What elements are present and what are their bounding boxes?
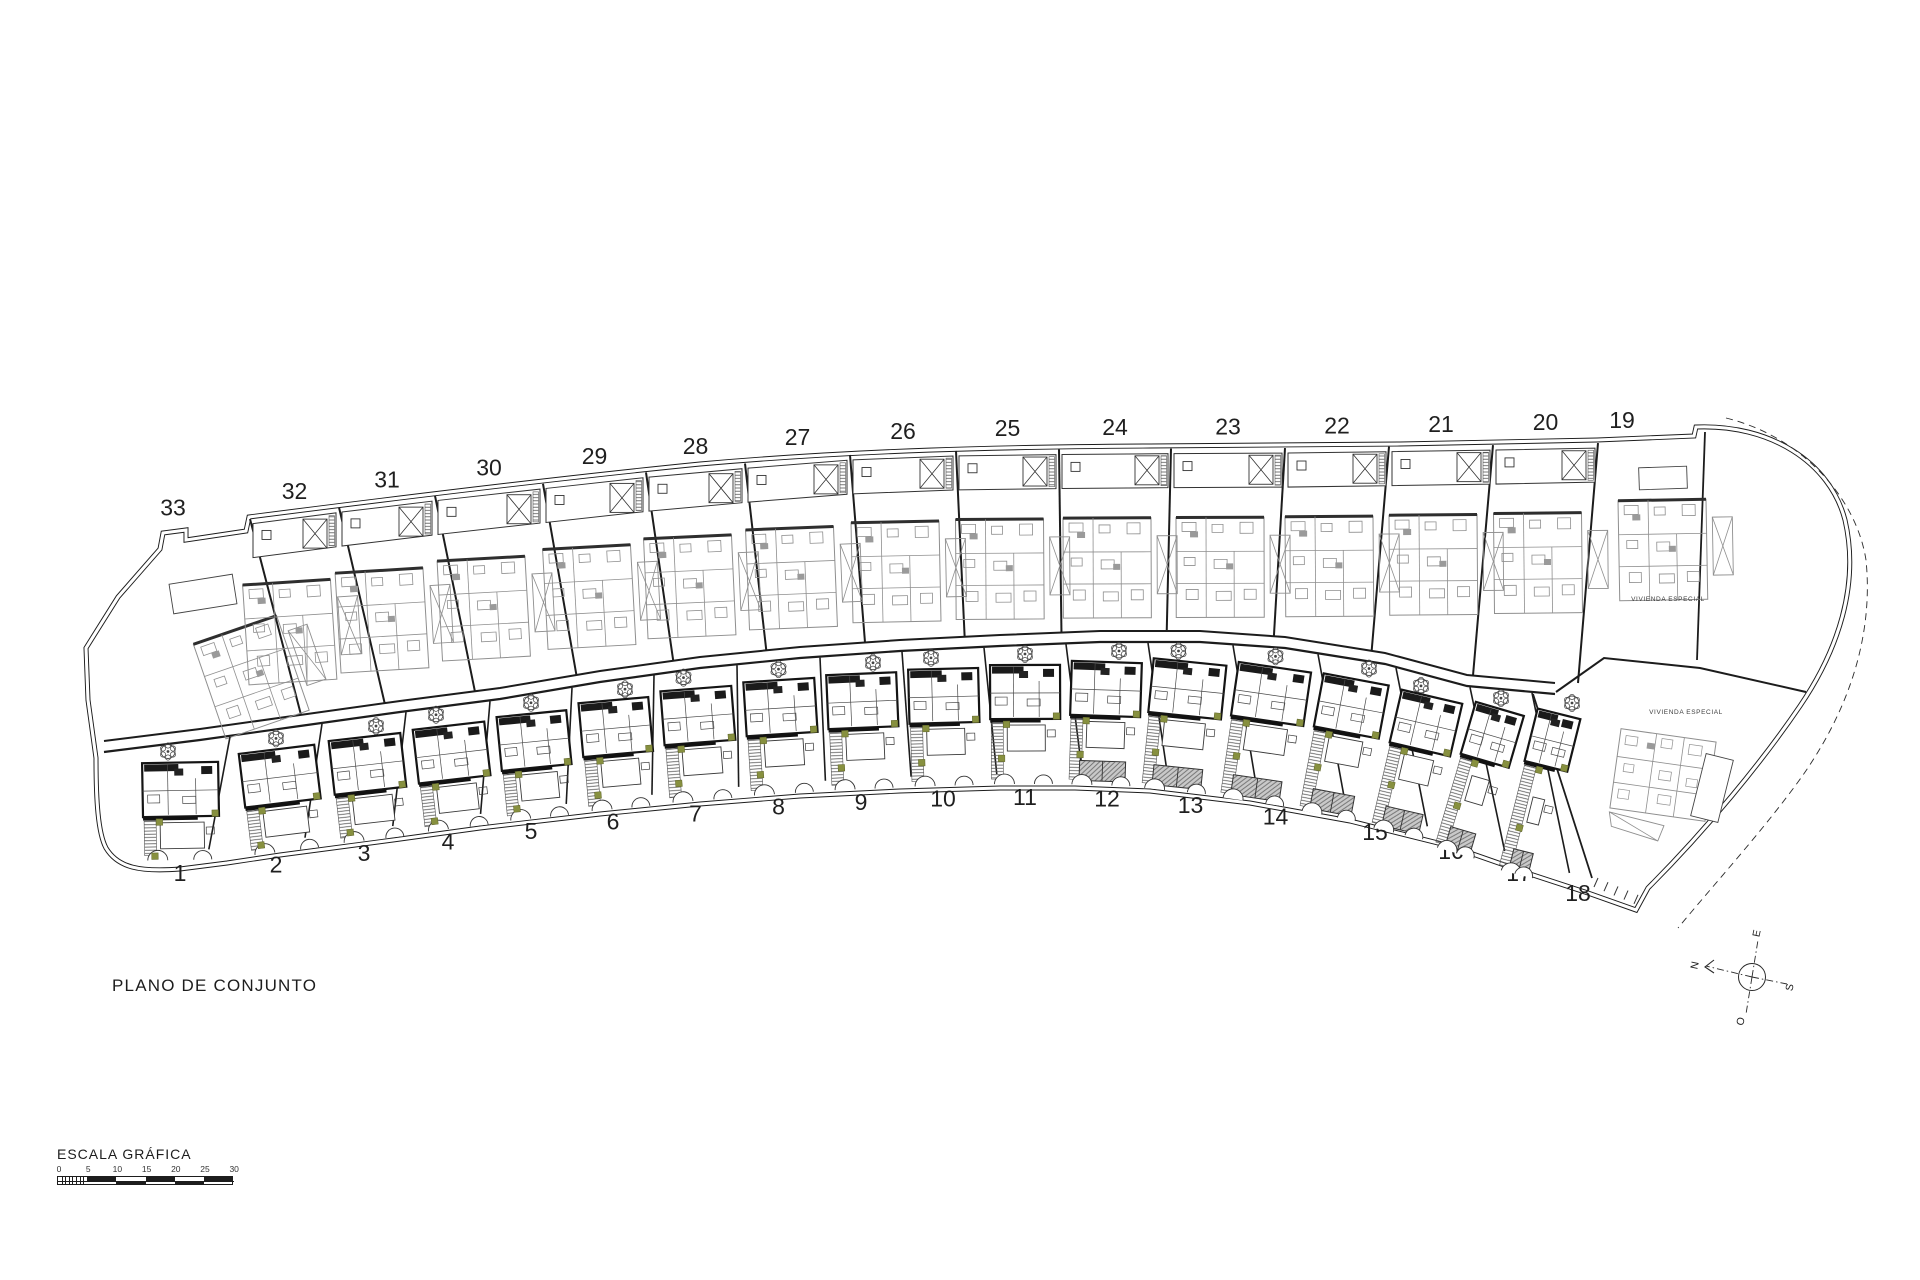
pool: [519, 771, 559, 801]
pool: [764, 739, 805, 767]
graphic-scale: ESCALA GRÁFICA 051015202530: [57, 1146, 242, 1185]
special-plot-label: VIVIENDA ESPECIAL: [1631, 596, 1705, 603]
gate-marker: [596, 757, 603, 764]
plot-number-label: 11: [1013, 784, 1037, 810]
plot-number-label: 13: [1178, 792, 1204, 818]
plot-number-label: 4: [442, 828, 455, 854]
gate-marker: [1003, 721, 1010, 728]
gate-marker: [838, 765, 845, 772]
gate-marker: [1243, 719, 1250, 726]
gate-marker: [431, 818, 438, 825]
plot-number-label: 22: [1324, 412, 1350, 438]
pool: [1086, 721, 1125, 748]
gate-marker: [1314, 764, 1322, 772]
gate-marker: [1515, 824, 1523, 832]
plot-number-label: 3: [358, 840, 371, 866]
plot-number-label: 14: [1263, 804, 1289, 830]
gate-marker: [156, 819, 163, 826]
pool: [1639, 466, 1688, 490]
gate-marker: [1296, 719, 1303, 726]
pool: [437, 783, 480, 813]
drive-strip: [830, 733, 844, 786]
gate-marker: [432, 783, 439, 790]
plot-number-label: 9: [855, 789, 868, 815]
plot-number-label: 18: [1565, 880, 1591, 906]
compass-n: N: [1688, 960, 1701, 970]
gate-marker: [258, 807, 265, 814]
carport-strip: [1288, 452, 1386, 487]
gate-marker: [1053, 713, 1060, 720]
gate-marker: [564, 758, 571, 765]
scale-tick-label: 25: [200, 1164, 209, 1174]
plot-number-label: 30: [476, 455, 502, 481]
gate-marker: [513, 805, 520, 812]
gate-marker: [212, 810, 219, 817]
gate-marker: [152, 853, 159, 860]
compass-rose: NSEO: [1688, 929, 1796, 1027]
gate-marker: [594, 792, 601, 799]
gate-marker: [313, 792, 320, 799]
plot-number-label: 31: [374, 467, 400, 493]
gate-marker: [1535, 766, 1543, 774]
gate-marker: [1387, 781, 1395, 789]
plot-number-label: 1: [174, 860, 187, 886]
gate-marker: [515, 771, 522, 778]
carport-strip: [1496, 448, 1595, 484]
gate-marker: [918, 759, 925, 766]
pool: [846, 733, 885, 761]
plot-number-label: 7: [689, 800, 702, 826]
pool: [1007, 725, 1045, 751]
carport-strip: [959, 455, 1056, 490]
carport-strip: [1392, 450, 1490, 485]
compass-o: O: [1734, 1016, 1747, 1026]
gate-marker: [399, 781, 406, 788]
pool: [352, 794, 395, 824]
gate-marker: [972, 716, 979, 723]
gate-marker: [1152, 749, 1159, 756]
plot-number-label: 21: [1428, 411, 1454, 437]
special-plot-label: VIVIENDA ESPECIAL: [1649, 709, 1723, 716]
gate-marker: [678, 746, 685, 753]
pool: [1162, 720, 1205, 750]
plot-number-label: 8: [772, 794, 785, 820]
gate-marker: [646, 745, 653, 752]
stair-strip: [1275, 455, 1281, 485]
graphic-scale-title: ESCALA GRÁFICA: [57, 1146, 242, 1162]
gate-marker: [842, 730, 849, 737]
plot-number-label: 25: [995, 415, 1021, 441]
compass-s: S: [1783, 983, 1796, 992]
stair-strip: [1483, 452, 1489, 482]
gate-marker: [1400, 747, 1408, 755]
gate-marker: [891, 720, 898, 727]
gate-marker: [1443, 749, 1451, 757]
scale-tick-label: 15: [142, 1164, 151, 1174]
gate-marker: [810, 726, 817, 733]
site-plan-drawing: 3332313029282726252423222120VIVIENDA ESP…: [0, 0, 1920, 1280]
gate-marker: [1083, 717, 1090, 724]
gate-marker: [728, 734, 735, 741]
pool: [160, 822, 204, 849]
carport-strip: [1062, 454, 1168, 489]
gate-marker: [1372, 731, 1380, 739]
gate-marker: [675, 780, 682, 787]
plot-number-label: 10: [930, 786, 956, 812]
pool: [927, 728, 966, 755]
plot-number-label: 26: [890, 418, 916, 444]
compass-e: E: [1750, 929, 1763, 938]
pool: [263, 806, 310, 837]
scale-tick-label: 0: [57, 1164, 62, 1174]
plot-number-label: 23: [1215, 413, 1241, 439]
gate-marker: [1560, 764, 1568, 772]
stair-strip: [735, 471, 741, 501]
gate-marker: [258, 842, 265, 849]
stair-strip: [533, 492, 539, 522]
pool: [1243, 724, 1287, 756]
page-title: PLANO DE CONJUNTO: [112, 976, 317, 996]
stair-strip: [636, 481, 642, 511]
stair-strip: [946, 458, 952, 488]
plot-number-label: 5: [525, 818, 538, 844]
stair-strip: [1161, 456, 1167, 486]
plot-number-label: 2: [270, 852, 283, 878]
gate-marker: [483, 769, 490, 776]
stair-strip: [1049, 457, 1055, 487]
gate-marker: [1133, 711, 1140, 718]
carport-strip: [748, 460, 847, 502]
plot-number-label: 29: [582, 443, 608, 469]
pool: [601, 758, 641, 787]
plot-number-label: 33: [160, 494, 186, 520]
stair-strip: [840, 463, 846, 493]
gate-marker: [347, 829, 354, 836]
gate-marker: [1214, 713, 1221, 720]
drive-strip: [911, 727, 924, 781]
plot-number-label: 27: [785, 424, 811, 450]
scale-tick-label: 30: [229, 1164, 238, 1174]
plot-number-label: 28: [683, 433, 709, 459]
carport-strip: [1174, 453, 1282, 488]
gate-marker: [1325, 731, 1333, 739]
gate-marker: [923, 725, 930, 732]
carport-strip: [853, 456, 953, 494]
plot-number-label: 32: [282, 478, 308, 504]
scale-tick-label: 20: [171, 1164, 180, 1174]
stair-strip: [1588, 450, 1594, 480]
graphic-scale-ticks: 051015202530: [57, 1164, 242, 1175]
gate-marker: [998, 755, 1005, 762]
gate-marker: [757, 771, 764, 778]
graphic-scale-bar: [57, 1176, 233, 1185]
blueprint-canvas: 3332313029282726252423222120VIVIENDA ESP…: [0, 0, 1920, 1280]
gate-marker: [1160, 715, 1167, 722]
stair-strip: [329, 516, 335, 546]
stair-strip: [425, 504, 431, 534]
gate-marker: [348, 795, 355, 802]
plot-number-label: 20: [1533, 409, 1559, 435]
plot-number-label: 19: [1609, 407, 1635, 433]
gate-marker: [760, 737, 767, 744]
stair-strip: [1379, 454, 1385, 484]
scale-tick-label: 10: [113, 1164, 122, 1174]
plot-number-label: 6: [607, 809, 620, 835]
scale-tick-label: 5: [86, 1164, 91, 1174]
gate-marker: [1077, 751, 1084, 758]
gate-marker: [1233, 752, 1240, 759]
plot-number-label: 24: [1102, 414, 1128, 440]
pool: [1325, 736, 1363, 768]
drive-strip: [991, 723, 1003, 779]
pool: [682, 747, 723, 776]
plot-number-label: 12: [1094, 785, 1120, 811]
